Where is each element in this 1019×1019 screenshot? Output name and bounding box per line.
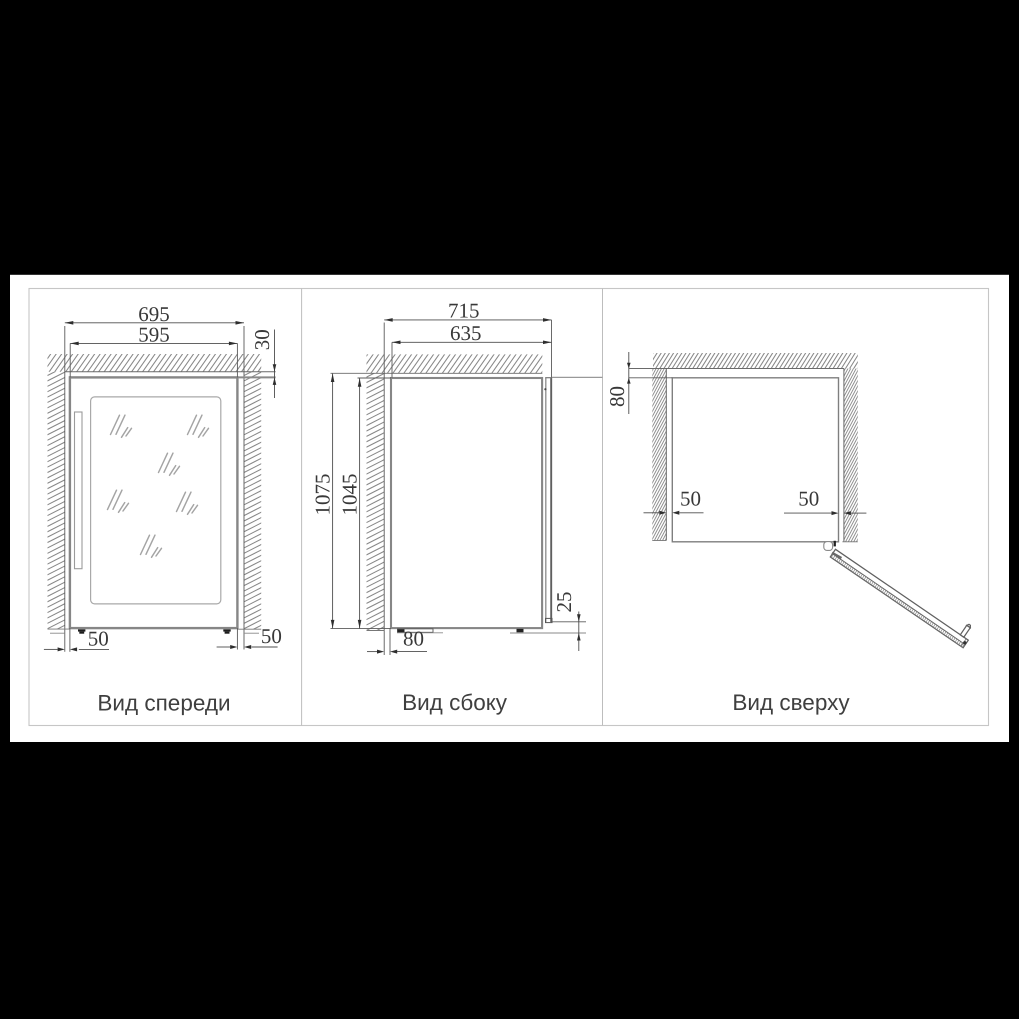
svg-text:80: 80 — [403, 627, 424, 651]
svg-text:50: 50 — [88, 627, 109, 651]
svg-text:Вид спереди: Вид спереди — [97, 691, 230, 716]
svg-text:635: 635 — [450, 321, 482, 345]
svg-text:50: 50 — [261, 624, 282, 648]
svg-text:1045: 1045 — [338, 474, 362, 516]
svg-text:30: 30 — [250, 329, 274, 350]
svg-text:715: 715 — [448, 299, 480, 323]
svg-text:Вид сбоку: Вид сбоку — [402, 690, 508, 715]
svg-text:595: 595 — [138, 323, 170, 347]
svg-text:Вид сверху: Вид сверху — [732, 690, 850, 715]
svg-text:50: 50 — [680, 487, 701, 511]
svg-text:1075: 1075 — [311, 474, 335, 516]
svg-text:80: 80 — [605, 386, 629, 407]
svg-text:25: 25 — [552, 592, 576, 613]
svg-text:50: 50 — [798, 487, 819, 511]
